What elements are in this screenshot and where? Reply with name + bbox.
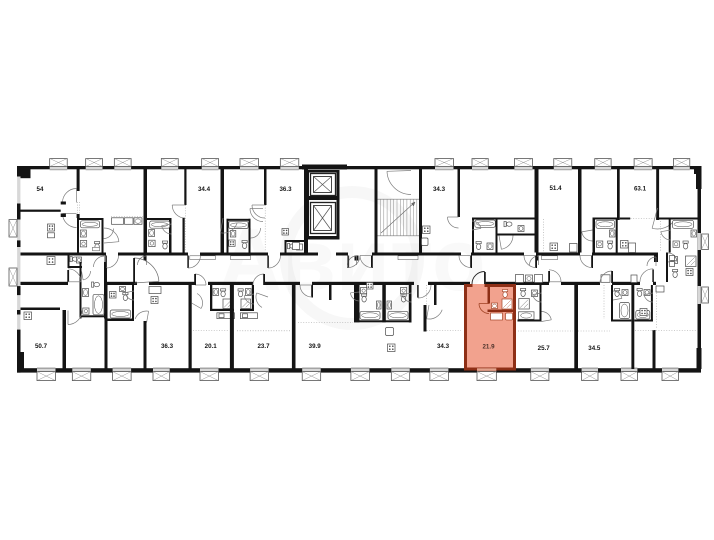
svg-text:23.7: 23.7 [257, 343, 270, 350]
svg-text:25.7: 25.7 [538, 345, 551, 352]
svg-text:Авито: Авито [218, 210, 485, 309]
svg-text:34.5: 34.5 [588, 345, 601, 352]
svg-text:34.3: 34.3 [433, 186, 446, 193]
svg-text:51.4: 51.4 [549, 185, 562, 192]
svg-text:39.9: 39.9 [309, 343, 322, 350]
svg-text:34.4: 34.4 [198, 186, 211, 193]
svg-text:36.3: 36.3 [161, 343, 174, 350]
svg-text:54: 54 [37, 186, 44, 193]
svg-text:20.1: 20.1 [205, 343, 218, 350]
svg-text:21.9: 21.9 [482, 344, 495, 351]
svg-text:50.7: 50.7 [35, 343, 48, 350]
svg-text:34.3: 34.3 [437, 343, 450, 350]
svg-text:36.3: 36.3 [279, 186, 292, 193]
svg-text:63.1: 63.1 [634, 186, 647, 193]
